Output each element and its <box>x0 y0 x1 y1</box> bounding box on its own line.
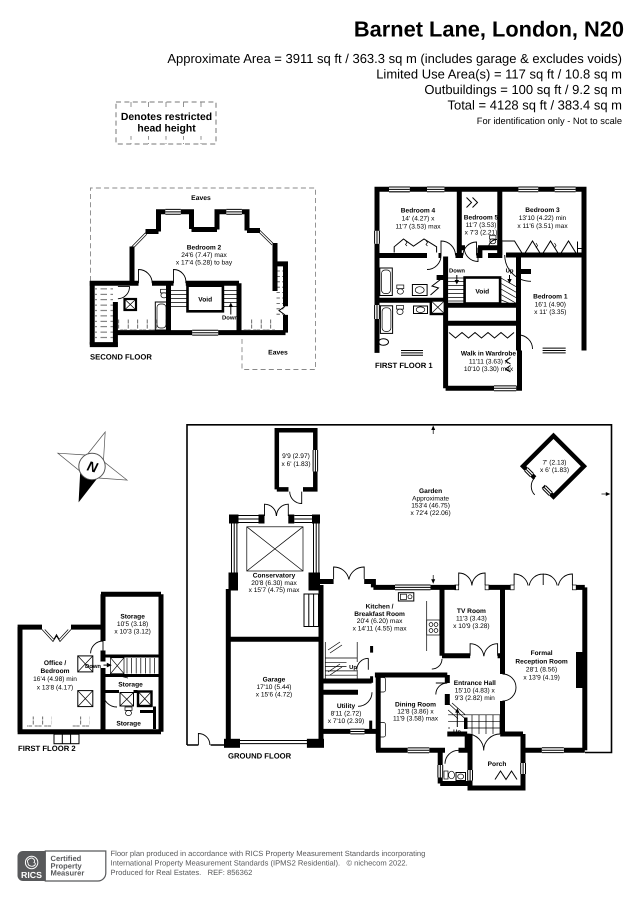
svg-text:9'9 (2.97): 9'9 (2.97) <box>282 453 310 460</box>
svg-text:11'7 (3.53) max: 11'7 (3.53) max <box>395 224 441 231</box>
svg-text:Denotes restricted: Denotes restricted <box>121 112 212 123</box>
svg-text:11'7 (3.53): 11'7 (3.53) <box>466 222 497 229</box>
svg-text:Kitchen /: Kitchen / <box>366 603 394 610</box>
svg-text:Garden: Garden <box>419 488 442 495</box>
svg-text:24'6 (7.47) max: 24'6 (7.47) max <box>181 252 227 259</box>
svg-text:FIRST FLOOR 1: FIRST FLOOR 1 <box>375 361 433 370</box>
svg-text:FIRST FLOOR 2: FIRST FLOOR 2 <box>18 744 76 753</box>
svg-text:Measurer: Measurer <box>51 869 85 878</box>
svg-text:Bedroom: Bedroom <box>41 668 70 675</box>
svg-text:Up: Up <box>506 268 514 275</box>
svg-text:Dining Room: Dining Room <box>395 701 436 708</box>
svg-text:RICS: RICS <box>21 870 42 880</box>
svg-text:x 7'3 (2.21): x 7'3 (2.21) <box>465 229 498 236</box>
svg-text:12'8 (3.86) x: 12'8 (3.86) x <box>397 709 434 716</box>
svg-text:Void: Void <box>475 289 489 296</box>
svg-text:x 10'3 (3.12): x 10'3 (3.12) <box>114 628 150 635</box>
svg-text:11'11 (3.63) x: 11'11 (3.63) x <box>469 358 509 365</box>
svg-text:Storage: Storage <box>118 682 143 689</box>
svg-text:Bedroom 1: Bedroom 1 <box>533 294 568 301</box>
svg-text:Bedroom 2: Bedroom 2 <box>187 245 222 252</box>
svg-text:Approximate: Approximate <box>412 495 449 502</box>
svg-text:8'11 (2.72): 8'11 (2.72) <box>331 710 362 717</box>
svg-text:28'1 (8.56): 28'1 (8.56) <box>526 666 557 673</box>
svg-text:Bedroom 3: Bedroom 3 <box>525 207 560 214</box>
svg-text:Office /: Office / <box>44 660 67 667</box>
svg-text:Eaves: Eaves <box>191 195 211 202</box>
svg-text:Conservatory: Conservatory <box>253 573 296 580</box>
svg-text:Bedroom 5: Bedroom 5 <box>464 215 499 222</box>
svg-text:Porch: Porch <box>488 761 507 768</box>
svg-text:GROUND FLOOR: GROUND FLOOR <box>228 752 292 761</box>
svg-text:x 15'6 (4.72): x 15'6 (4.72) <box>256 691 292 698</box>
svg-text:Down: Down <box>222 315 238 322</box>
svg-text:Bedroom 4: Bedroom 4 <box>401 208 436 215</box>
svg-text:153'4 (46.75): 153'4 (46.75) <box>411 503 450 510</box>
svg-text:x 14'11 (4.55) max: x 14'11 (4.55) max <box>353 626 408 633</box>
svg-text:7' (2.13): 7' (2.13) <box>543 460 567 467</box>
svg-text:x 72'4 (22.06): x 72'4 (22.06) <box>411 510 451 517</box>
svg-text:10'5 (3.18): 10'5 (3.18) <box>117 621 148 628</box>
svg-text:Breakfast Room: Breakfast Room <box>354 611 405 618</box>
svg-text:Storage: Storage <box>120 613 145 620</box>
svg-text:Floor plan produced in accorda: Floor plan produced in accordance with R… <box>111 849 426 858</box>
svg-text:Reception Room: Reception Room <box>515 658 568 665</box>
svg-text:Approximate Area = 3911 sq ft: Approximate Area = 3911 sq ft / 363.3 sq… <box>167 51 622 66</box>
svg-text:x 6' (1.83): x 6' (1.83) <box>281 461 310 468</box>
svg-text:Garage: Garage <box>263 677 286 684</box>
svg-text:x 11' (3.35): x 11' (3.35) <box>534 309 566 316</box>
svg-text:Up: Up <box>349 664 357 671</box>
svg-text:International Property Measure: International Property Measurement Stand… <box>111 859 408 868</box>
svg-text:Total = 4128 sq ft / 383.4 sq: Total = 4128 sq ft / 383.4 sq m <box>447 98 622 113</box>
svg-text:17'10 (5.44): 17'10 (5.44) <box>257 684 292 691</box>
svg-text:Walk in Wardrobe: Walk in Wardrobe <box>461 351 517 358</box>
svg-text:Barnet Lane, London, N20: Barnet Lane, London, N20 <box>354 17 624 42</box>
svg-text:Storage: Storage <box>116 721 141 728</box>
svg-text:Limited Use Area(s) = 117 sq f: Limited Use Area(s) = 117 sq ft / 10.8 s… <box>376 67 622 82</box>
svg-text:14' (4.27) x: 14' (4.27) x <box>402 216 435 223</box>
svg-text:x 15'7 (4.75) max: x 15'7 (4.75) max <box>249 587 300 594</box>
svg-text:16'1 (4.90): 16'1 (4.90) <box>535 301 566 308</box>
svg-text:Eaves: Eaves <box>268 350 288 357</box>
svg-text:11'9 (3.58) max: 11'9 (3.58) max <box>393 716 439 723</box>
svg-text:11'3 (3.43): 11'3 (3.43) <box>456 616 487 623</box>
svg-text:Produced for Real Estates. R: Produced for Real Estates. REF: 856362 <box>111 868 253 877</box>
svg-text:Utility: Utility <box>337 703 356 710</box>
svg-text:Down: Down <box>85 663 101 670</box>
svg-text:13'10 (4.22) min: 13'10 (4.22) min <box>519 215 567 222</box>
svg-text:x 10'9 (3.28): x 10'9 (3.28) <box>453 623 489 630</box>
svg-text:Entrance Hall: Entrance Hall <box>454 680 496 687</box>
svg-text:x 13'8 (4.17): x 13'8 (4.17) <box>37 684 73 691</box>
svg-text:For identification only - Not: For identification only - Not to scale <box>477 116 622 126</box>
svg-text:9'3 (2.82) min: 9'3 (2.82) min <box>455 695 495 702</box>
svg-text:x 7'10 (2.39): x 7'10 (2.39) <box>328 718 364 725</box>
svg-text:SECOND FLOOR: SECOND FLOOR <box>90 353 152 362</box>
svg-text:TV Room: TV Room <box>457 608 486 615</box>
svg-text:x 17'4 (5.28) to bay: x 17'4 (5.28) to bay <box>176 260 233 267</box>
svg-text:10'10 (3.30) max: 10'10 (3.30) max <box>464 366 514 373</box>
svg-text:20'4 (6.20) max: 20'4 (6.20) max <box>357 618 403 625</box>
svg-text:Outbuildings = 100 sq ft / 9.2: Outbuildings = 100 sq ft / 9.2 sq m <box>424 82 622 97</box>
svg-text:x 13'9 (4.19): x 13'9 (4.19) <box>523 675 559 682</box>
svg-text:Formal: Formal <box>531 650 553 657</box>
svg-text:head height: head height <box>137 124 196 135</box>
svg-text:20'8 (6.30) max: 20'8 (6.30) max <box>251 580 297 587</box>
svg-text:15'10 (4.83) x: 15'10 (4.83) x <box>455 687 496 694</box>
svg-text:x 6' (1.83): x 6' (1.83) <box>540 467 569 474</box>
svg-text:Down: Down <box>449 268 465 275</box>
svg-text:Void: Void <box>198 297 212 304</box>
svg-text:x 11'6 (3.51) max: x 11'6 (3.51) max <box>517 223 568 230</box>
svg-text:16'4 (4.98) min: 16'4 (4.98) min <box>33 676 77 683</box>
